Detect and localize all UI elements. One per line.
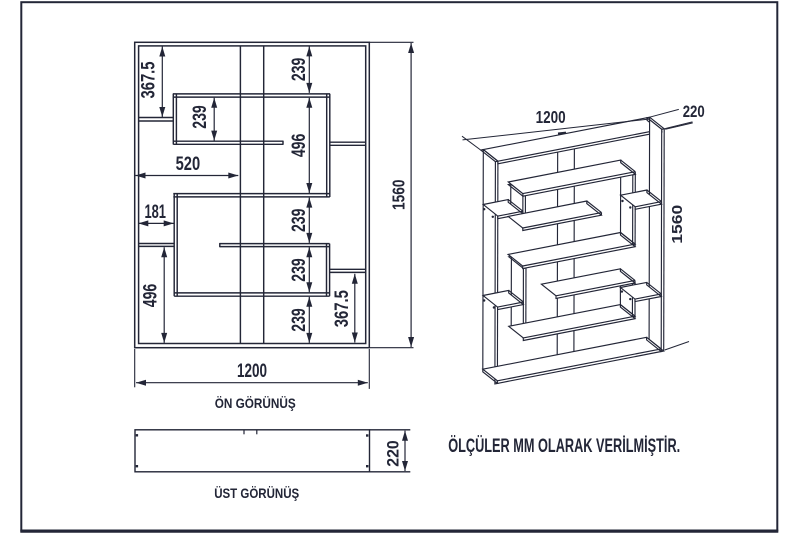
svg-text:239: 239 [289,209,310,233]
svg-text:1200: 1200 [237,361,267,382]
svg-text:239: 239 [190,105,211,129]
svg-text:ÜST GÖRÜNÜŞ: ÜST GÖRÜNÜŞ [214,486,299,501]
svg-text:496: 496 [289,134,310,158]
svg-text:367.5: 367.5 [332,290,353,327]
svg-text:ÖLÇÜLER MM OLARAK VERİLMİŞTİR.: ÖLÇÜLER MM OLARAK VERİLMİŞTİR. [448,434,680,457]
svg-text:1560: 1560 [388,179,408,210]
svg-text:367.5: 367.5 [138,61,159,98]
svg-text:520: 520 [176,154,201,175]
svg-text:220: 220 [384,440,403,467]
svg-text:1560: 1560 [669,205,686,244]
svg-text:1200: 1200 [536,107,566,127]
svg-text:239: 239 [289,58,310,82]
svg-text:239: 239 [289,308,310,332]
svg-text:496: 496 [141,284,162,308]
svg-text:181: 181 [144,202,166,223]
svg-text:ÖN GÖRÜNÜŞ: ÖN GÖRÜNÜŞ [215,396,296,411]
svg-text:220: 220 [683,102,705,121]
svg-text:239: 239 [289,258,310,282]
